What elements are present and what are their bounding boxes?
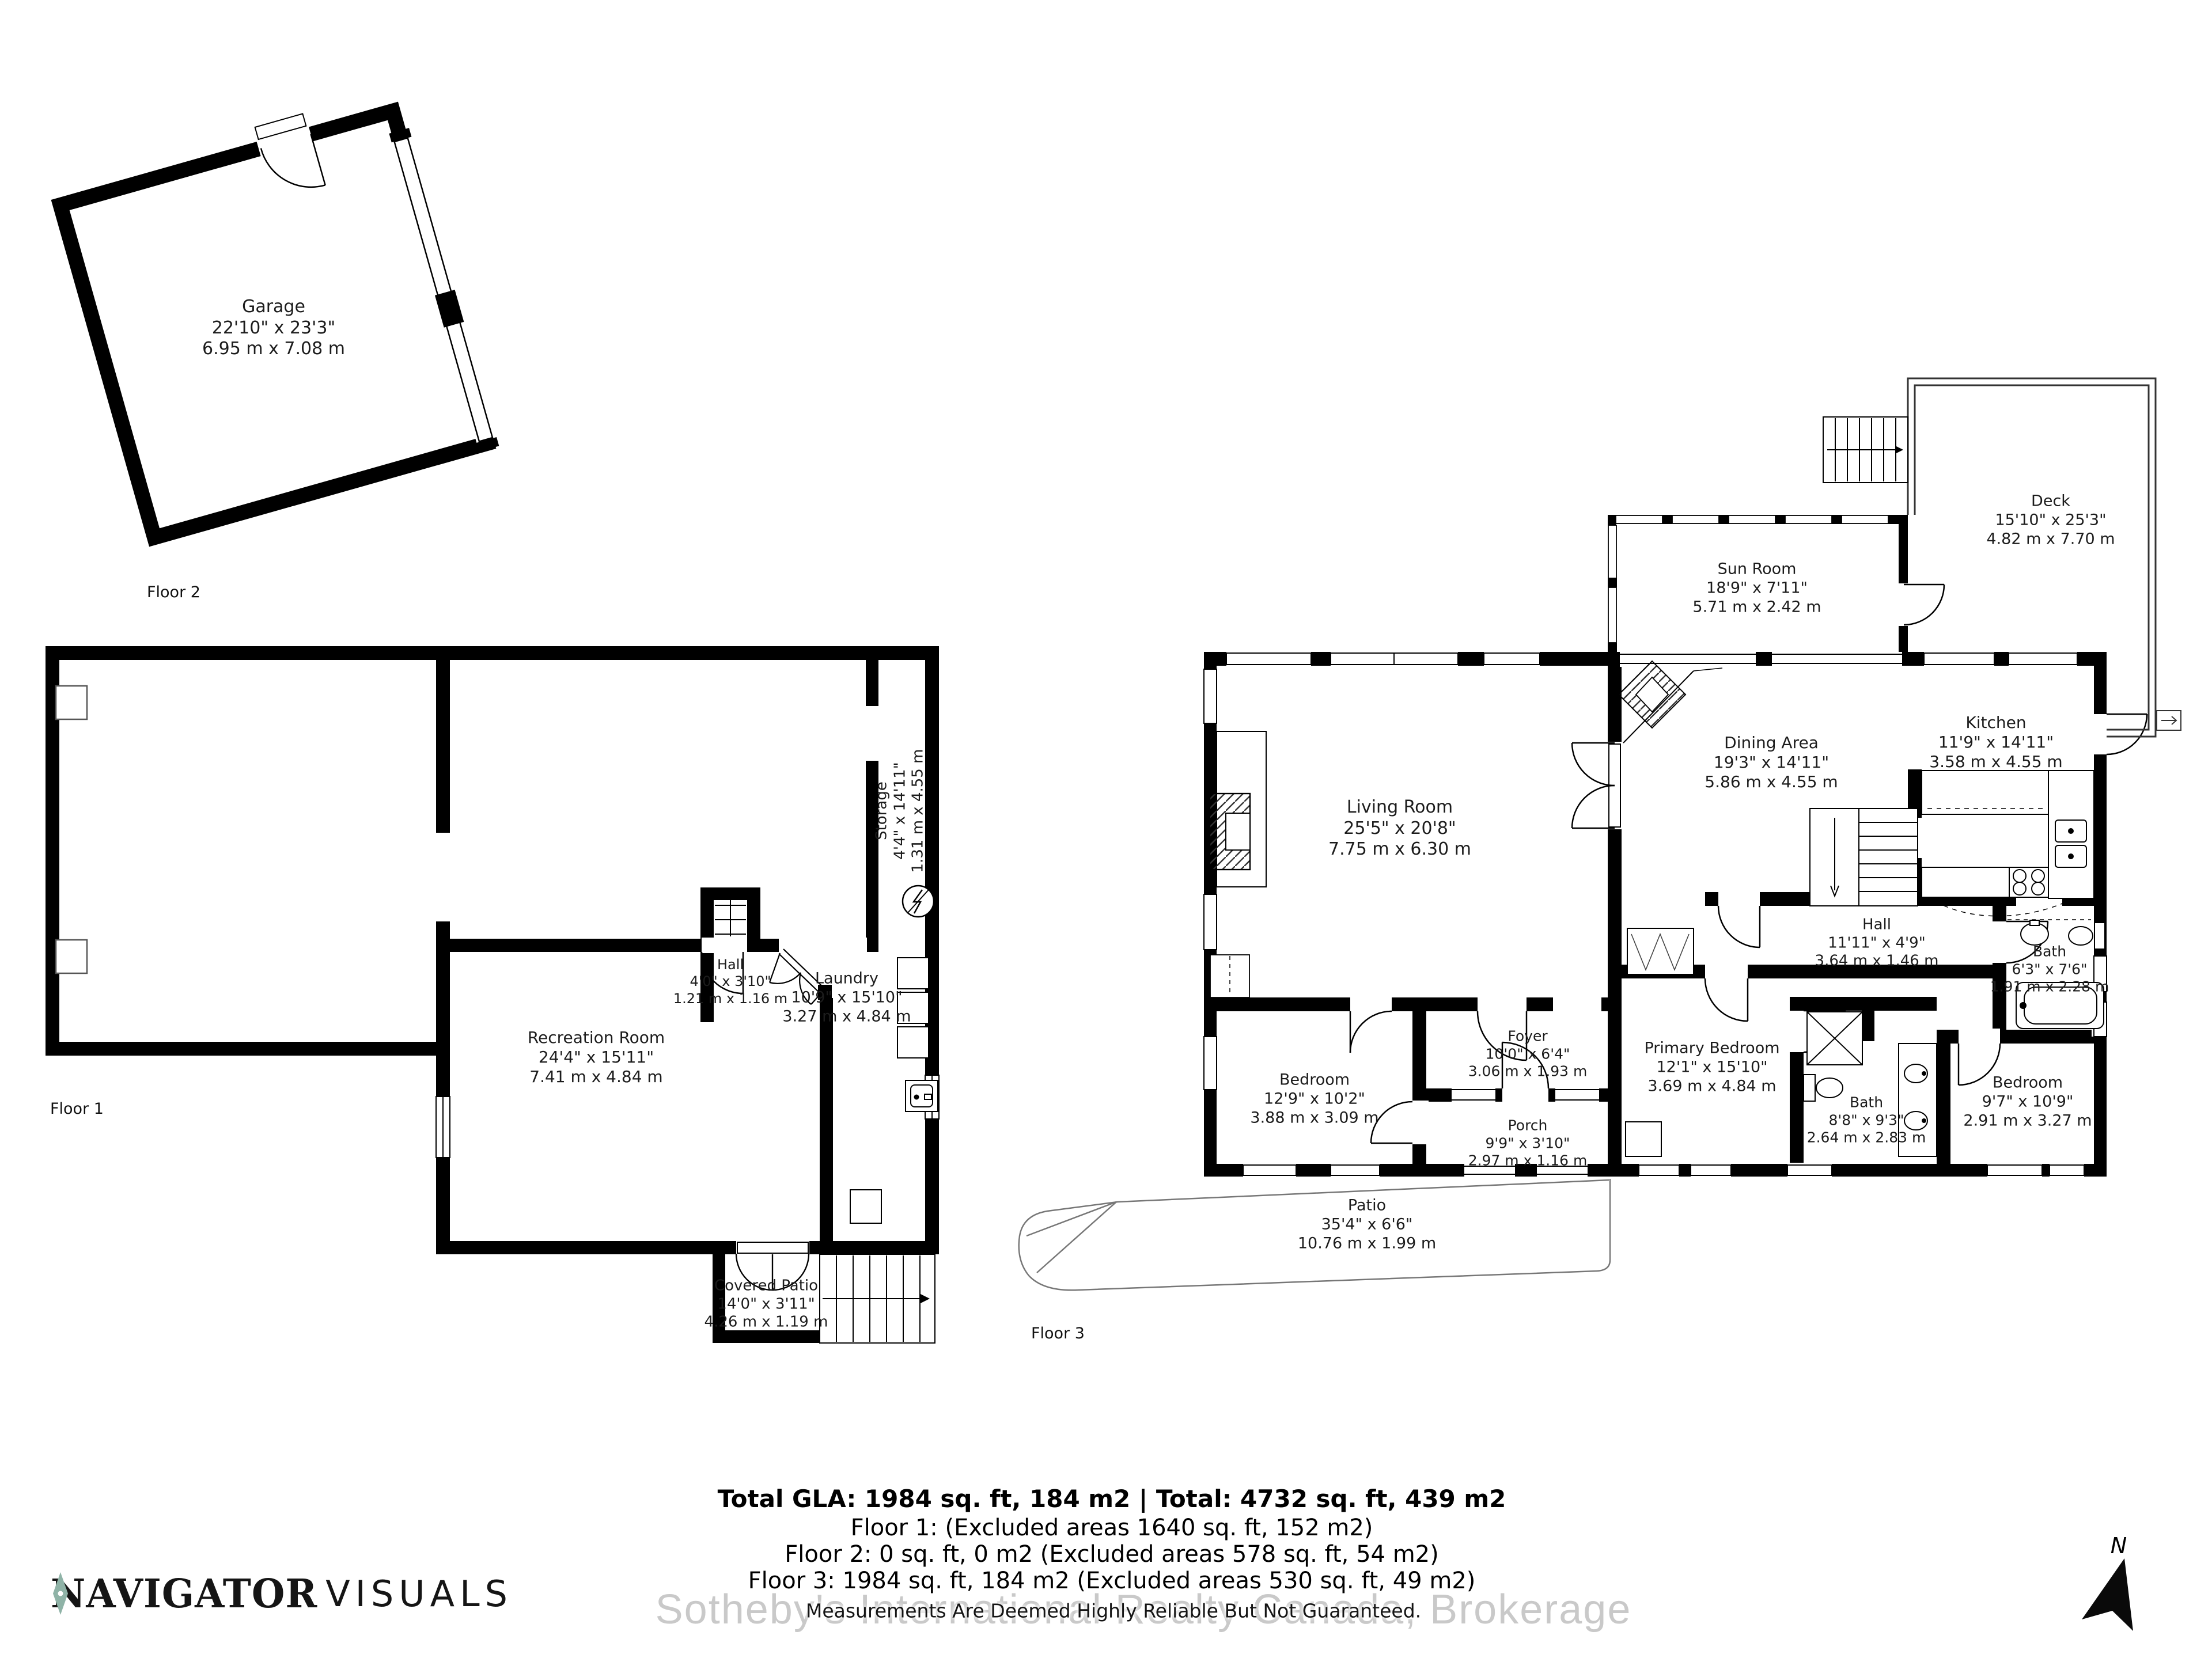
room-label-hall-f3: Hall11'11" x 4'9"3.64 m x 1.46 m <box>1815 916 1939 970</box>
fireplace-icon <box>1210 731 1266 997</box>
compass-needle-icon <box>51 1571 70 1616</box>
room-label-living-room: Living Room25'5" x 20'8"7.75 m x 6.30 m <box>1328 797 1471 860</box>
room-label-patio: Patio35'4" x 6'6"10.76 m x 1.99 m <box>1298 1197 1436 1254</box>
room-label-sun-room: Sun Room18'9" x 7'11"5.71 m x 2.42 m <box>1692 560 1821 617</box>
floorplan-page: Garage22'10" x 23'3"6.95 m x 7.08 m Stor… <box>0 0 2212 1658</box>
floor2-summary-line: Floor 2: 0 sq. ft, 0 m2 (Excluded areas … <box>785 1541 1439 1568</box>
room-label-bedroom-sw: Bedroom12'9" x 10'2"3.88 m x 3.09 m <box>1250 1071 1378 1128</box>
deck-structure <box>1908 378 2181 737</box>
room-label-porch: Porch9'9" x 3'10"2.97 m x 1.16 m <box>1468 1117 1588 1170</box>
dining-fireplace-icon <box>1619 661 1685 728</box>
room-label-laundry: Laundry10'9" x 15'10"3.27 m x 4.84 m <box>782 970 911 1027</box>
floor1-label: Floor 1 <box>50 1100 104 1118</box>
navigator-visuals-logo: NAVIGATOR VISUALS <box>51 1571 513 1616</box>
floorplan-drawing <box>0 0 2212 1658</box>
room-label-bath-ne: Bath6'3" x 7'6"1.91 m x 2.28 m <box>1990 943 2109 996</box>
room-label-dining-area: Dining Area19'3" x 14'11"5.86 m x 4.55 m <box>1705 733 1838 792</box>
room-label-garage: Garage22'10" x 23'3"6.95 m x 7.08 m <box>202 297 345 360</box>
room-label-kitchen: Kitchen11'9" x 14'11"3.58 m x 4.55 m <box>1929 713 2062 772</box>
electrical-panel-icon <box>903 886 934 917</box>
room-label-deck: Deck15'10" x 25'3"4.82 m x 7.70 m <box>1986 492 2115 549</box>
floor1-summary-line: Floor 1: (Excluded areas 1640 sq. ft, 15… <box>851 1515 1373 1541</box>
north-arrow-icon <box>2082 1558 2133 1631</box>
room-label-hall-f1: Hall4'0" x 3'10"1.21 m x 1.16 m <box>673 957 787 1007</box>
floor2-label: Floor 2 <box>147 583 200 601</box>
room-label-foyer: Foyer10'0" x 6'4"3.06 m x 1.93 m <box>1468 1027 1588 1080</box>
room-label-bedroom-se: Bedroom9'7" x 10'9"2.91 m x 3.27 m <box>1963 1074 2092 1131</box>
total-gla-line: Total GLA: 1984 sq. ft, 184 m2 | Total: … <box>718 1485 1506 1513</box>
kitchen-fixtures <box>1922 771 2094 916</box>
logo-word-visuals: VISUALS <box>325 1573 513 1615</box>
room-label-bath-s: Bath8'8" x 9'3"2.64 m x 2.83 m <box>1807 1094 1926 1147</box>
north-label: N <box>2111 1533 2127 1558</box>
disclaimer-text: Measurements Are Deemed Highly Reliable … <box>806 1600 1421 1622</box>
room-label-recreation-room: Recreation Room24'4" x 15'11"7.41 m x 4.… <box>528 1028 665 1087</box>
room-label-storage: Storage4'4" x 14'11"1.31 m x 4.55 m <box>873 749 927 873</box>
logo-word-navigator: NAVIGATOR <box>51 1570 317 1617</box>
room-label-primary-bedroom: Primary Bedroom12'1" x 15'10"3.69 m x 4.… <box>1644 1039 1779 1097</box>
room-label-covered-patio: Covered Patio14'0" x 3'11"4.26 m x 1.19 … <box>704 1277 828 1331</box>
floor3-label: Floor 3 <box>1031 1325 1085 1342</box>
